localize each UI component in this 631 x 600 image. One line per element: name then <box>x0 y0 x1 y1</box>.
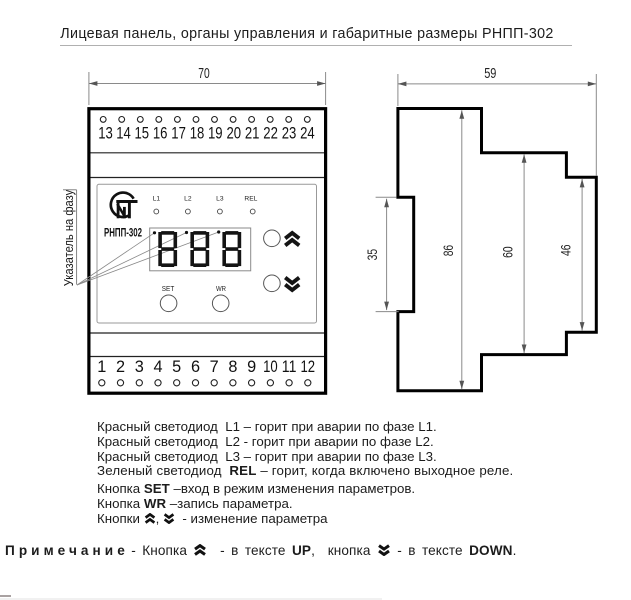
svg-text:L1: L1 <box>153 196 161 203</box>
svg-text:15: 15 <box>135 125 150 143</box>
svg-text:86: 86 <box>441 245 456 257</box>
svg-text:60: 60 <box>501 246 516 258</box>
svg-text:70: 70 <box>198 66 209 82</box>
svg-text:18: 18 <box>190 125 205 143</box>
svg-text:6: 6 <box>191 358 200 376</box>
svg-text:17: 17 <box>171 125 186 143</box>
svg-text:11: 11 <box>282 358 297 376</box>
svg-text:8: 8 <box>228 358 237 376</box>
svg-text:Указатель на фазу: Указатель на фазу <box>61 189 76 286</box>
svg-text:3: 3 <box>135 358 144 376</box>
svg-text:5: 5 <box>172 358 181 376</box>
svg-text:59: 59 <box>484 66 496 82</box>
svg-text:L3: L3 <box>216 196 224 203</box>
svg-text:WR: WR <box>216 284 226 293</box>
svg-text:4: 4 <box>153 358 162 376</box>
svg-text:16: 16 <box>153 125 168 143</box>
svg-text:13: 13 <box>98 125 113 143</box>
svg-text:1: 1 <box>97 358 106 376</box>
svg-text:22: 22 <box>263 125 278 143</box>
svg-text:23: 23 <box>282 125 297 143</box>
svg-text:9: 9 <box>247 358 256 376</box>
svg-text:35: 35 <box>365 249 380 261</box>
svg-text:19: 19 <box>208 125 223 143</box>
svg-text:20: 20 <box>227 125 242 143</box>
svg-text:12: 12 <box>301 358 316 376</box>
svg-text:14: 14 <box>116 125 131 143</box>
svg-text:46: 46 <box>559 245 574 257</box>
svg-text:24: 24 <box>300 125 315 143</box>
svg-text:7: 7 <box>210 358 219 376</box>
svg-text:REL: REL <box>244 196 257 203</box>
svg-text:10: 10 <box>263 358 278 376</box>
svg-text:SET: SET <box>162 284 175 293</box>
svg-text:2: 2 <box>116 358 125 376</box>
svg-text:L2: L2 <box>184 196 192 203</box>
svg-text:РНПП-302: РНПП-302 <box>104 225 142 239</box>
svg-text:21: 21 <box>245 125 260 143</box>
